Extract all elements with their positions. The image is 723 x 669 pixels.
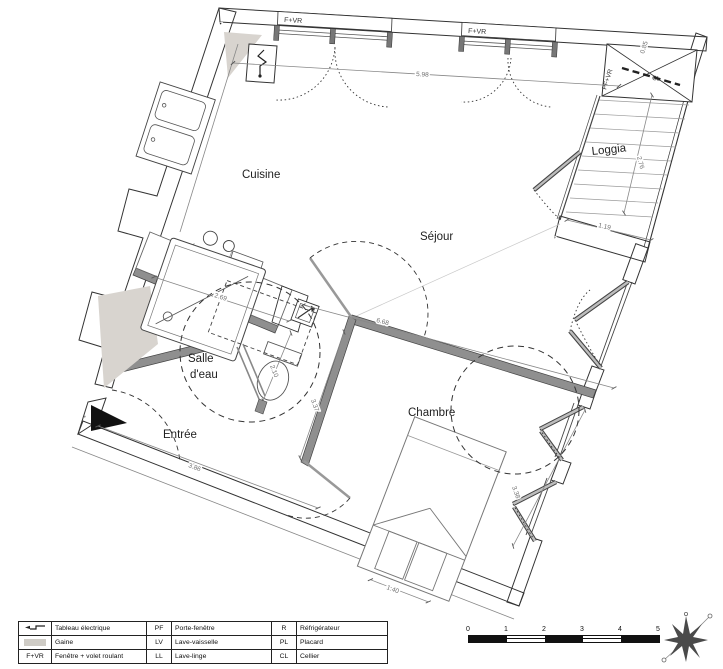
- loggia-label: Loggia: [591, 142, 627, 158]
- scale-tick: 2: [542, 626, 546, 633]
- salle-eau-label-1: Salle: [188, 353, 214, 365]
- scale-tick: 3: [580, 626, 584, 633]
- gaine-swatch: [19, 636, 52, 650]
- salle-eau-label-2: d'eau: [190, 369, 218, 381]
- compass-north-icon: [656, 608, 718, 664]
- legend-abbr: LV: [147, 636, 172, 650]
- legend-abbr: F+VR: [19, 650, 52, 664]
- kitchen-sink: [136, 82, 215, 174]
- dim-337: 3.37: [309, 398, 320, 413]
- legend-label: Tableau électrique: [52, 622, 147, 636]
- tableau-electrique: [246, 44, 277, 83]
- legend-abbr: PF: [147, 622, 172, 636]
- scale-tick: 4: [618, 626, 622, 633]
- scale-tick: 0: [466, 626, 470, 633]
- dim-140: 1.40: [385, 584, 400, 595]
- legend-label: Porte-fenêtre: [172, 622, 272, 636]
- legend-label: Gaine: [52, 636, 147, 650]
- dim-338: 3.38: [510, 485, 521, 500]
- salle-eau-area: Salle d'eau 2.69 2.10: [98, 237, 320, 422]
- dim-598: 5.98: [416, 71, 429, 79]
- scale-tick: 1: [504, 626, 508, 633]
- legend-label: Lave-vaisselle: [172, 636, 272, 650]
- gaine-shaded: [98, 286, 158, 388]
- cuisine-label: Cuisine: [242, 169, 280, 181]
- chambre-label: Chambre: [408, 407, 455, 419]
- dim-276: 2.76: [635, 156, 645, 170]
- legend-label: Lave-linge: [172, 650, 272, 664]
- scale-bar: 0 1 2 3 4 5: [468, 626, 660, 643]
- legend-label: Fenêtre + volet roulant: [52, 650, 147, 664]
- legend-label: Placard: [297, 636, 388, 650]
- loggia: CL PF+VR 0.85 Loggia 2.76 1.19: [534, 40, 697, 240]
- legend-abbr: R: [272, 622, 297, 636]
- legend-label: Réfrigérateur: [297, 622, 388, 636]
- window-label-fvr-2: F+VR: [468, 28, 486, 36]
- legend-table: Tableau électrique PF Porte-fenêtre R Ré…: [18, 621, 388, 664]
- window-label-fvr-1: F+VR: [284, 17, 302, 25]
- legend-row: Gaine LV Lave-vaisselle PL Placard: [19, 636, 388, 650]
- sejour-label: Séjour: [420, 231, 453, 243]
- entree-label: Entrée: [163, 429, 197, 441]
- legend-abbr: PL: [272, 636, 297, 650]
- legend-row: F+VR Fenêtre + volet roulant LL Lave-lin…: [19, 650, 388, 664]
- chambre-door-leaf: [304, 461, 350, 498]
- legend-abbr: CL: [272, 650, 297, 664]
- floor-plan: F+VR F+VR: [0, 0, 723, 664]
- legend-abbr: LL: [147, 650, 172, 664]
- legend-row: Tableau électrique PF Porte-fenêtre R Ré…: [19, 622, 388, 636]
- wall-entree-chambre: [301, 316, 356, 466]
- legend-label: Cellier: [297, 650, 388, 664]
- scale-bar-segments: [468, 635, 660, 643]
- cellier-box: CL: [602, 44, 697, 102]
- scale-ticks: 0 1 2 3 4 5: [468, 626, 660, 635]
- east-windows: 3.38: [510, 281, 632, 546]
- tableau-electrique-icon: [19, 622, 52, 636]
